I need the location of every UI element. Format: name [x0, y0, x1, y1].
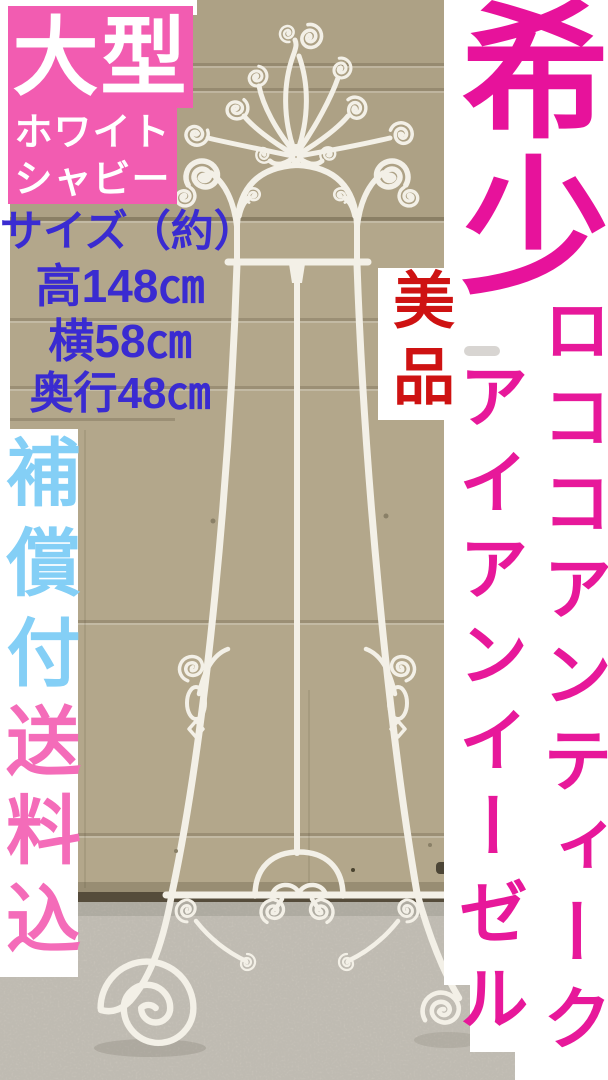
size-depth: 奥行48㎝ — [0, 368, 240, 420]
large-label: 大型 — [8, 8, 193, 108]
size-heading: サイズ（約） — [0, 206, 240, 258]
compensation-label: 補償付 — [0, 434, 76, 704]
white-label: ホワイト — [8, 110, 177, 156]
right-vertical-text-outer: ロココアンティーク — [536, 294, 608, 1068]
size-width: 横58㎝ — [0, 314, 240, 368]
size-info-block: サイズ（約） 高148㎝ 横58㎝ 奥行48㎝ — [0, 206, 240, 420]
condition-badge: 美品 — [378, 268, 456, 420]
photo-smudge — [464, 346, 500, 356]
right-vertical-text-inner: アイアンイーゼル — [452, 360, 524, 1048]
shipping-included-label: 送料込 — [0, 702, 76, 969]
size-height: 高148㎝ — [0, 258, 240, 314]
listing-image: 希少 ロココアンティーク アイアンイーゼル 大型 ホワイト シャビー サイズ（約… — [0, 0, 608, 1080]
rare-badge: 希少 — [446, 0, 596, 306]
shabby-label: シャビー — [8, 157, 177, 203]
top-left-pink-box: 大型 ホワイト シャビー — [8, 6, 193, 204]
condition-text: 美品 — [385, 268, 449, 420]
